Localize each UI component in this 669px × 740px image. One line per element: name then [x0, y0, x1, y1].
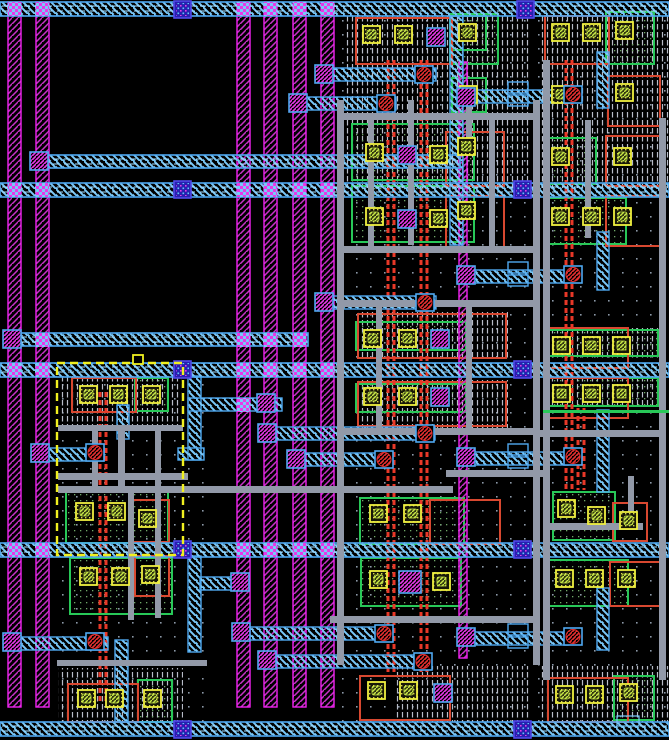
contact-plug: [84, 572, 93, 581]
via-hatch: [258, 424, 276, 442]
contact[interactable]: [139, 510, 156, 527]
metal2-stub[interactable]: [597, 232, 609, 290]
via-hatch: [566, 268, 580, 282]
metal1-rail[interactable]: [8, 2, 21, 707]
contact[interactable]: [106, 690, 123, 707]
metal2-wire[interactable]: [462, 270, 568, 283]
via-metal1-metal2[interactable]: [31, 444, 49, 462]
contact-plug: [620, 88, 629, 97]
via-poly-contact[interactable]: [564, 628, 582, 645]
via-hatch: [287, 450, 305, 468]
layer-overlap: [8, 183, 21, 197]
contact[interactable]: [558, 500, 575, 517]
contact-plug: [372, 686, 381, 695]
via-metal1-metal2[interactable]: [258, 424, 276, 442]
via-poly-contact[interactable]: [416, 294, 434, 311]
via-hatch: [398, 146, 416, 164]
metal2-bus[interactable]: [40, 155, 460, 168]
layer-overlap: [237, 543, 250, 557]
metal3-route[interactable]: [659, 118, 666, 680]
contact[interactable]: [620, 684, 637, 701]
via-dots: [516, 723, 529, 736]
via-poly-contact[interactable]: [375, 625, 393, 642]
layer-overlap: [293, 183, 306, 197]
via-dots: [176, 3, 189, 16]
layer-overlap: [237, 183, 250, 197]
via-metal2-metal3[interactable]: [174, 721, 191, 738]
contact-plug: [556, 212, 565, 221]
contact-plug: [370, 212, 379, 221]
metal3-route[interactable]: [368, 118, 374, 248]
contact-plug: [112, 507, 121, 516]
metal2-bus[interactable]: [0, 722, 669, 736]
contact-plug: [84, 390, 93, 399]
contact[interactable]: [586, 686, 603, 703]
via-hatch: [258, 651, 276, 669]
contact-plug: [587, 28, 596, 37]
via-hatch: [457, 88, 475, 106]
contact[interactable]: [614, 148, 631, 165]
contact-plug: [562, 504, 571, 513]
contact[interactable]: [144, 690, 161, 707]
contact-plug: [148, 694, 157, 703]
layer-overlap: [36, 183, 49, 197]
contact[interactable]: [556, 686, 573, 703]
contact[interactable]: [552, 148, 569, 165]
contact-plug: [590, 690, 599, 699]
metal2-bus[interactable]: [0, 183, 669, 197]
metal2-stub[interactable]: [597, 588, 609, 650]
via-metal2-metal3[interactable]: [514, 181, 531, 198]
via-hatch: [31, 444, 49, 462]
contact[interactable]: [613, 385, 630, 402]
metal1-rail[interactable]: [237, 2, 250, 707]
layer-overlap: [36, 333, 49, 347]
layer-overlap: [8, 543, 21, 557]
via-metal1-metal2[interactable]: [398, 146, 416, 164]
metal3-route[interactable]: [337, 113, 533, 120]
contact[interactable]: [553, 337, 570, 354]
metal2-bus[interactable]: [0, 543, 669, 557]
via-metal1-metal2[interactable]: [315, 65, 333, 83]
contact-plug: [374, 509, 383, 518]
via-hatch: [88, 635, 102, 649]
contact[interactable]: [404, 505, 421, 522]
layer-overlap: [264, 363, 277, 377]
via-hatch: [417, 68, 431, 82]
via-poly-contact[interactable]: [564, 266, 582, 283]
contact[interactable]: [399, 330, 416, 347]
contact-plug: [143, 514, 152, 523]
contact[interactable]: [553, 385, 570, 402]
layer-overlap: [293, 2, 306, 16]
contact-plug: [587, 341, 596, 350]
contact-plug: [592, 511, 601, 520]
via-metal1-metal2[interactable]: [258, 651, 276, 669]
layout-canvas[interactable]: [0, 0, 669, 740]
via-hatch: [379, 97, 393, 111]
layer-overlap: [293, 543, 306, 557]
layer-overlap: [8, 363, 21, 377]
via-poly-contact[interactable]: [375, 451, 393, 468]
layer-overlap: [36, 363, 49, 377]
contact-plug: [617, 341, 626, 350]
metal2-bus[interactable]: [0, 2, 669, 16]
via-hatch: [399, 571, 421, 593]
layout-viewport: [0, 0, 669, 740]
contact-plug: [624, 516, 633, 525]
via-hatch: [431, 330, 449, 348]
contact[interactable]: [363, 26, 380, 43]
via-metal1-metal2[interactable]: [257, 394, 275, 412]
contact-plug: [557, 389, 566, 398]
diffusion-edge: [543, 410, 669, 413]
contact-plug: [370, 148, 379, 157]
contact-plug: [624, 688, 633, 697]
via-metal1-metal2[interactable]: [3, 330, 21, 348]
contact-plug: [403, 334, 412, 343]
metal1-rail[interactable]: [264, 2, 277, 707]
metal2-stub[interactable]: [115, 640, 128, 722]
via-metal1-metal2[interactable]: [431, 330, 449, 348]
metal2-wire[interactable]: [237, 627, 389, 640]
metal1-rail[interactable]: [36, 2, 49, 707]
contact-plug: [404, 686, 413, 695]
layer-overlap: [36, 543, 49, 557]
contact-plug: [434, 214, 443, 223]
via-hatch: [434, 684, 452, 702]
metal3-route[interactable]: [543, 60, 550, 680]
contact-plug: [556, 152, 565, 161]
contact-plug: [434, 150, 443, 159]
metal3-route[interactable]: [466, 302, 472, 428]
contact-plug: [368, 392, 377, 401]
contact-plug: [622, 574, 631, 583]
contact[interactable]: [458, 138, 475, 155]
via-dots: [516, 543, 529, 556]
layer-overlap: [237, 333, 250, 347]
contact[interactable]: [76, 503, 93, 520]
via-metal1-metal2[interactable]: [431, 388, 449, 406]
via-hatch: [30, 152, 48, 170]
contact[interactable]: [366, 208, 383, 225]
contact-plug: [374, 575, 383, 584]
metal3-route[interactable]: [118, 425, 125, 493]
metal2-wire[interactable]: [462, 632, 568, 645]
via-metal1-metal2[interactable]: [232, 623, 250, 641]
via-hatch: [289, 94, 307, 112]
contact[interactable]: [586, 570, 603, 587]
layer-overlap: [264, 2, 277, 16]
metal3-route[interactable]: [337, 300, 533, 307]
contact[interactable]: [370, 505, 387, 522]
via-hatch: [566, 88, 580, 102]
contact[interactable]: [556, 570, 573, 587]
contact-plug: [557, 341, 566, 350]
via-dots: [516, 363, 529, 376]
via-poly-contact[interactable]: [415, 66, 433, 83]
via-poly-contact[interactable]: [414, 653, 432, 670]
contact[interactable]: [112, 568, 129, 585]
via-hatch: [427, 28, 445, 46]
contact[interactable]: [80, 568, 97, 585]
via-metal2-metal3[interactable]: [514, 361, 531, 378]
via-metal1-metal2[interactable]: [457, 628, 475, 646]
via-hatch: [418, 296, 432, 310]
contact[interactable]: [78, 690, 95, 707]
contact[interactable]: [143, 386, 160, 403]
contact[interactable]: [459, 24, 476, 41]
contact[interactable]: [618, 570, 635, 587]
via-metal2-metal3[interactable]: [174, 1, 191, 18]
contact-plug: [560, 690, 569, 699]
via-metal1-metal2[interactable]: [398, 210, 416, 228]
via-hatch: [418, 427, 432, 441]
contact[interactable]: [430, 210, 447, 227]
via-metal2-metal3[interactable]: [517, 1, 534, 18]
via-metal1-metal2[interactable]: [457, 266, 475, 284]
via-hatch: [416, 655, 430, 669]
contact[interactable]: [552, 24, 569, 41]
via-hatch: [3, 633, 21, 651]
via-hatch: [566, 630, 580, 644]
via-hatch: [398, 210, 416, 228]
layer-overlap: [36, 2, 49, 16]
metal2-wire[interactable]: [462, 452, 568, 465]
layer-overlap: [264, 183, 277, 197]
via-hatch: [566, 450, 580, 464]
via-poly-contact[interactable]: [86, 633, 104, 650]
metal3-route[interactable]: [337, 100, 344, 665]
via-hatch: [377, 627, 391, 641]
contact[interactable]: [614, 208, 631, 225]
contact[interactable]: [583, 24, 600, 41]
contact[interactable]: [108, 503, 125, 520]
contact[interactable]: [458, 202, 475, 219]
contact-plug: [80, 507, 89, 516]
layer-overlap: [293, 333, 306, 347]
layer-overlap: [321, 183, 334, 197]
via-hatch: [3, 330, 21, 348]
contact[interactable]: [616, 84, 633, 101]
contact[interactable]: [588, 507, 605, 524]
metal2-stub[interactable]: [597, 410, 609, 492]
layer-overlap: [321, 543, 334, 557]
contact[interactable]: [364, 330, 381, 347]
via-hatch: [431, 388, 449, 406]
metal3-route[interactable]: [376, 302, 382, 428]
contact[interactable]: [616, 22, 633, 39]
via-hatch: [457, 448, 475, 466]
contact-plug: [367, 30, 376, 39]
contact-plug: [620, 26, 629, 35]
layer-overlap: [293, 363, 306, 377]
via-hatch: [457, 266, 475, 284]
metal3-route[interactable]: [446, 470, 546, 477]
via-hatch: [315, 293, 333, 311]
layer-overlap: [237, 2, 250, 16]
contact-plug: [114, 390, 123, 399]
via-hatch: [88, 446, 102, 460]
contact-plug: [437, 577, 446, 586]
via-dots: [519, 3, 532, 16]
metal3-route[interactable]: [58, 486, 453, 493]
metal2-wire[interactable]: [263, 655, 431, 668]
metal3-route[interactable]: [337, 246, 533, 253]
contact[interactable]: [583, 385, 600, 402]
contact[interactable]: [620, 512, 637, 529]
contact-plug: [587, 389, 596, 398]
via-hatch: [231, 573, 249, 591]
layer-overlap: [264, 543, 277, 557]
contact-plug: [82, 694, 91, 703]
contact-plug: [556, 28, 565, 37]
via-poly-contact[interactable]: [86, 444, 104, 461]
contact-plug: [116, 572, 125, 581]
metal2-stub[interactable]: [597, 52, 609, 108]
contact-plug: [587, 212, 596, 221]
via-metal1-metal2[interactable]: [3, 633, 21, 651]
contact-plug: [560, 574, 569, 583]
metal3-route[interactable]: [533, 100, 540, 665]
contact[interactable]: [430, 146, 447, 163]
layer-overlap: [237, 363, 250, 377]
contact[interactable]: [142, 566, 159, 583]
via-metal1-metal2[interactable]: [287, 450, 305, 468]
contact-plug: [147, 390, 156, 399]
via-metal1-metal2[interactable]: [231, 573, 249, 591]
via-dots: [516, 183, 529, 196]
contact-plug: [399, 30, 408, 39]
contact[interactable]: [80, 386, 97, 403]
contact[interactable]: [366, 144, 383, 161]
via-dots: [176, 183, 189, 196]
contact[interactable]: [433, 573, 450, 590]
contact-plug: [618, 212, 627, 221]
contact[interactable]: [552, 208, 569, 225]
contact-plug: [403, 392, 412, 401]
via-metal2-metal3[interactable]: [174, 181, 191, 198]
contact-plug: [146, 570, 155, 579]
selection-origin-marker[interactable]: [133, 355, 143, 364]
metal3-route[interactable]: [57, 660, 207, 666]
via-metal1-metal2[interactable]: [315, 293, 333, 311]
via-metal1-metal2[interactable]: [457, 88, 475, 106]
contact-plug: [408, 509, 417, 518]
via-hatch: [315, 65, 333, 83]
metal3-route[interactable]: [58, 473, 188, 480]
contact-plug: [368, 334, 377, 343]
layer-overlap: [321, 363, 334, 377]
contact[interactable]: [400, 682, 417, 699]
via-metal2-metal3[interactable]: [514, 541, 531, 558]
metal3-route[interactable]: [489, 118, 495, 248]
via-dots: [176, 723, 189, 736]
via-hatch: [457, 628, 475, 646]
layer-overlap: [237, 398, 250, 412]
via-metal2-metal3[interactable]: [514, 721, 531, 738]
via-poly-contact[interactable]: [416, 425, 434, 442]
via-metal1-metal2[interactable]: [399, 571, 421, 593]
contact[interactable]: [370, 571, 387, 588]
metal2-bus[interactable]: [0, 363, 669, 377]
contact-plug: [590, 574, 599, 583]
layer-overlap: [264, 333, 277, 347]
contact[interactable]: [110, 386, 127, 403]
metal2-stub[interactable]: [188, 556, 201, 652]
metal3-route[interactable]: [340, 428, 533, 435]
contact[interactable]: [613, 337, 630, 354]
via-hatch: [377, 453, 391, 467]
via-metal1-metal2[interactable]: [30, 152, 48, 170]
metal3-route[interactable]: [58, 425, 183, 431]
via-poly-contact[interactable]: [564, 86, 582, 103]
contact[interactable]: [368, 682, 385, 699]
contact-plug: [110, 694, 119, 703]
contact-plug: [618, 152, 627, 161]
via-hatch: [232, 623, 250, 641]
contact-plug: [463, 28, 472, 37]
via-poly-contact[interactable]: [564, 448, 582, 465]
layer-overlap: [321, 2, 334, 16]
metal2-bus[interactable]: [8, 333, 308, 346]
via-hatch: [257, 394, 275, 412]
contact[interactable]: [364, 388, 381, 405]
metal3-route[interactable]: [330, 616, 533, 623]
via-metal1-metal2[interactable]: [289, 94, 307, 112]
contact[interactable]: [395, 26, 412, 43]
metal3-route[interactable]: [540, 430, 666, 437]
contact-plug: [462, 142, 471, 151]
via-metal1-metal2[interactable]: [434, 684, 452, 702]
via-poly-contact[interactable]: [377, 95, 395, 112]
contact-plug: [617, 389, 626, 398]
contact[interactable]: [399, 388, 416, 405]
via-metal1-metal2[interactable]: [457, 448, 475, 466]
via-metal1-metal2[interactable]: [427, 28, 445, 46]
layer-overlap: [8, 2, 21, 16]
contact-plug: [462, 206, 471, 215]
contact[interactable]: [583, 208, 600, 225]
contact[interactable]: [583, 337, 600, 354]
